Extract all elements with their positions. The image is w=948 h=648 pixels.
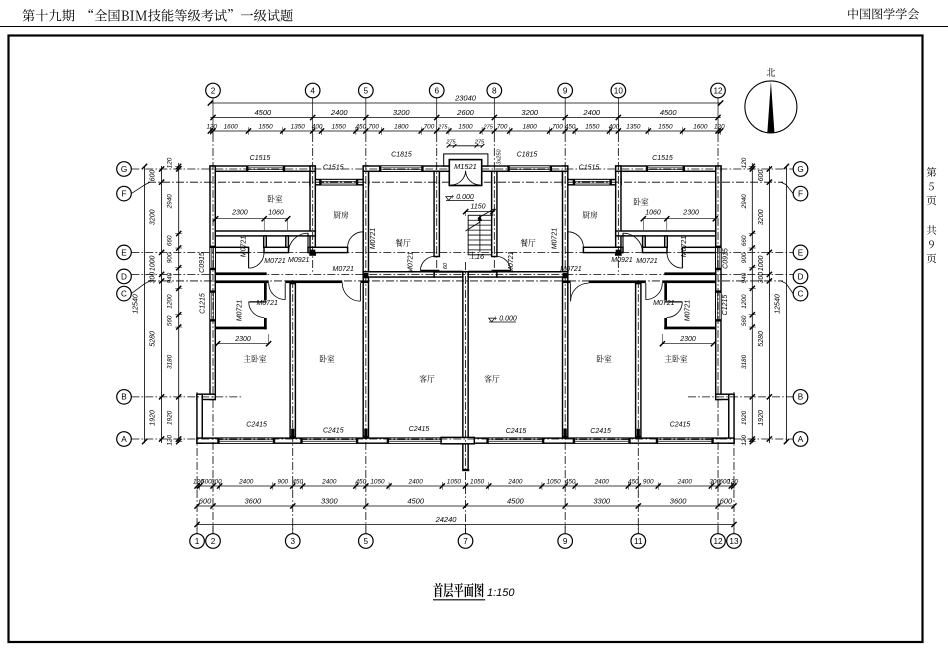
svg-text:3200: 3200: [149, 209, 156, 225]
svg-text:G: G: [797, 165, 803, 174]
svg-text:700: 700: [424, 124, 435, 131]
svg-text:700: 700: [552, 124, 563, 131]
svg-text:2300: 2300: [682, 209, 699, 216]
svg-text:2400: 2400: [330, 108, 349, 117]
svg-text:M0721: M0721: [653, 300, 675, 307]
svg-text:M0721: M0721: [237, 300, 244, 322]
svg-text:660: 660: [741, 235, 748, 246]
svg-text:1050: 1050: [447, 478, 462, 485]
svg-text:D: D: [798, 272, 804, 281]
svg-text:3180: 3180: [167, 354, 174, 369]
svg-text:M0721: M0721: [407, 251, 414, 273]
svg-text:C2415: C2415: [590, 428, 611, 435]
svg-text:2300: 2300: [679, 336, 696, 343]
svg-text:12540: 12540: [133, 294, 140, 314]
svg-text:13: 13: [729, 537, 739, 546]
svg-text:900: 900: [643, 478, 654, 485]
svg-text:4500: 4500: [507, 496, 525, 505]
svg-text:1550: 1550: [259, 124, 274, 131]
svg-text:C2415: C2415: [506, 428, 527, 435]
svg-text:1000: 1000: [758, 255, 765, 271]
svg-text:120: 120: [206, 124, 217, 131]
svg-text:1350: 1350: [291, 124, 306, 131]
svg-text:A: A: [798, 435, 804, 444]
svg-text:400: 400: [312, 124, 323, 131]
svg-text:1600: 1600: [224, 124, 239, 131]
svg-text:1050: 1050: [470, 478, 485, 485]
svg-text:1550: 1550: [658, 124, 673, 131]
svg-text:A: A: [121, 435, 127, 444]
svg-text:275: 275: [483, 125, 494, 131]
svg-text:4: 4: [310, 86, 315, 95]
svg-text:C1515: C1515: [579, 164, 600, 171]
svg-text:2400: 2400: [408, 478, 424, 485]
svg-text:560: 560: [167, 315, 174, 326]
svg-text:120: 120: [741, 435, 748, 446]
svg-text:1200: 1200: [741, 294, 748, 309]
svg-text:12: 12: [713, 86, 723, 95]
svg-text:4500: 4500: [407, 496, 425, 505]
svg-text:1150: 1150: [470, 204, 485, 211]
svg-text:2940: 2940: [167, 194, 174, 210]
svg-text:B: B: [121, 393, 127, 402]
svg-text:2300: 2300: [231, 209, 248, 216]
svg-text:1: 1: [195, 537, 200, 546]
svg-text:3200: 3200: [393, 108, 411, 117]
svg-text:1060: 1060: [645, 209, 661, 216]
svg-text:F: F: [121, 190, 126, 199]
svg-text:1800: 1800: [394, 124, 409, 131]
svg-text:E: E: [121, 248, 127, 257]
svg-text:C1515: C1515: [323, 164, 344, 171]
svg-text:450: 450: [356, 478, 367, 485]
svg-text:B: B: [798, 393, 804, 402]
svg-text:1050: 1050: [546, 478, 561, 485]
svg-text:7: 7: [463, 537, 468, 546]
svg-text:M0921: M0921: [611, 257, 633, 264]
svg-text:1:150: 1:150: [487, 587, 515, 599]
svg-text:940: 940: [741, 272, 748, 283]
svg-text:3200: 3200: [758, 209, 765, 225]
svg-text:2: 2: [211, 537, 216, 546]
svg-text:C: C: [798, 290, 804, 299]
svg-text:600: 600: [720, 496, 733, 505]
svg-text:1920: 1920: [149, 410, 156, 426]
svg-text:3600: 3600: [245, 496, 263, 505]
svg-text:2940: 2940: [741, 194, 748, 210]
svg-text:9: 9: [563, 537, 568, 546]
svg-text:F: F: [798, 190, 803, 199]
svg-text:600: 600: [199, 496, 212, 505]
svg-text:4500: 4500: [254, 108, 272, 117]
svg-text:450: 450: [565, 478, 576, 485]
svg-text:2400: 2400: [594, 478, 610, 485]
svg-text:300: 300: [211, 478, 222, 485]
svg-text:900: 900: [741, 252, 748, 263]
svg-text:1000: 1000: [149, 255, 156, 271]
svg-text:300: 300: [149, 272, 156, 284]
svg-text:C1815: C1815: [517, 152, 538, 159]
svg-text:2400: 2400: [507, 478, 523, 485]
svg-text:5280: 5280: [149, 331, 156, 347]
svg-text:120: 120: [741, 157, 748, 168]
svg-text:C: C: [121, 290, 127, 299]
svg-text:275: 275: [437, 125, 448, 131]
svg-text:600: 600: [758, 170, 765, 182]
svg-text:120: 120: [167, 435, 174, 446]
svg-text:6: 6: [434, 86, 439, 95]
svg-text:3: 3: [290, 537, 295, 546]
svg-text:3300: 3300: [593, 496, 611, 505]
svg-text:1550: 1550: [585, 124, 600, 131]
svg-text:450: 450: [565, 124, 576, 131]
svg-text:11: 11: [634, 537, 643, 546]
svg-text:M0921: M0921: [288, 257, 310, 264]
svg-text:M0721: M0721: [370, 228, 377, 250]
svg-text:+ 0.000: + 0.000: [450, 194, 474, 201]
svg-text:3x250: 3x250: [497, 148, 503, 164]
svg-text:9: 9: [563, 86, 568, 95]
svg-text:M0721: M0721: [552, 228, 559, 250]
svg-text:560: 560: [741, 315, 748, 326]
svg-text:2600: 2600: [456, 108, 475, 117]
svg-text:C2415: C2415: [246, 421, 267, 428]
svg-text:G: G: [121, 165, 127, 174]
svg-text:660: 660: [167, 235, 174, 246]
svg-text:3180: 3180: [741, 354, 748, 369]
svg-text:940: 940: [167, 272, 174, 283]
svg-text:C0915: C0915: [199, 252, 206, 273]
svg-text:D: D: [121, 272, 127, 281]
svg-text:2: 2: [211, 86, 216, 95]
svg-text:12: 12: [713, 537, 723, 546]
svg-text:M1521: M1521: [454, 162, 477, 171]
svg-text:M0721: M0721: [264, 258, 286, 265]
svg-text:M0721: M0721: [241, 236, 248, 258]
svg-text:3300: 3300: [321, 496, 339, 505]
svg-text:1600: 1600: [693, 124, 708, 131]
svg-text:1550: 1550: [332, 124, 347, 131]
svg-text:1920: 1920: [741, 410, 748, 425]
svg-text:C1215: C1215: [200, 293, 207, 314]
svg-text:5280: 5280: [758, 331, 765, 347]
svg-text:1920: 1920: [758, 410, 765, 426]
svg-text:1200: 1200: [167, 294, 174, 309]
svg-text:C1815: C1815: [391, 152, 412, 159]
svg-text:23040: 23040: [454, 93, 477, 102]
svg-text:450: 450: [356, 124, 367, 131]
svg-text:1050: 1050: [370, 478, 385, 485]
svg-text:2300: 2300: [234, 336, 251, 343]
svg-text:2400: 2400: [321, 478, 337, 485]
svg-text:120: 120: [167, 157, 174, 168]
svg-text:2400: 2400: [582, 108, 601, 117]
svg-text:120: 120: [727, 478, 738, 485]
svg-text:C1515: C1515: [652, 155, 673, 162]
svg-text:2400: 2400: [677, 478, 693, 485]
svg-text:+ 0.000: + 0.000: [493, 315, 517, 322]
svg-text:5: 5: [364, 86, 369, 95]
svg-text:24240: 24240: [435, 515, 458, 524]
svg-text:5: 5: [364, 537, 369, 546]
svg-text:10: 10: [614, 86, 624, 95]
svg-text:1350: 1350: [626, 124, 641, 131]
svg-text:1500: 1500: [458, 124, 473, 131]
svg-text:16: 16: [476, 252, 485, 261]
svg-text:4500: 4500: [660, 108, 678, 117]
svg-text:C1215: C1215: [722, 295, 729, 316]
svg-text:900: 900: [167, 252, 174, 263]
svg-text:275: 275: [445, 140, 456, 146]
svg-text:C0915: C0915: [723, 248, 730, 269]
svg-text:120: 120: [714, 124, 725, 131]
svg-text:3600: 3600: [670, 496, 688, 505]
svg-text:M0721: M0721: [685, 300, 692, 322]
svg-text:300: 300: [758, 272, 765, 284]
svg-text:C2415: C2415: [670, 422, 691, 429]
svg-text:M0721: M0721: [560, 266, 582, 273]
svg-text:12540: 12540: [775, 294, 782, 314]
svg-text:60: 60: [443, 262, 449, 269]
svg-text:275: 275: [474, 140, 485, 146]
svg-text:M0721: M0721: [681, 236, 688, 258]
svg-text:C2415: C2415: [409, 426, 430, 433]
svg-text:M0721: M0721: [256, 300, 278, 307]
svg-text:M0721: M0721: [332, 266, 354, 273]
svg-text:1800: 1800: [523, 124, 538, 131]
svg-text:700: 700: [368, 124, 379, 131]
svg-text:600: 600: [149, 170, 156, 182]
svg-text:700: 700: [497, 124, 508, 131]
svg-text:1060: 1060: [268, 209, 284, 216]
svg-text:M0721: M0721: [508, 251, 515, 273]
svg-text:1920: 1920: [167, 410, 174, 425]
svg-text:8: 8: [492, 86, 497, 95]
svg-text:M0721: M0721: [636, 258, 658, 265]
svg-text:C2415: C2415: [323, 427, 344, 434]
svg-text:450: 450: [628, 478, 639, 485]
svg-text:E: E: [798, 248, 804, 257]
svg-text:900: 900: [277, 478, 288, 485]
svg-text:C1515: C1515: [250, 155, 271, 162]
svg-text:2400: 2400: [238, 478, 254, 485]
svg-text:3200: 3200: [521, 108, 539, 117]
svg-text:450: 450: [292, 478, 303, 485]
